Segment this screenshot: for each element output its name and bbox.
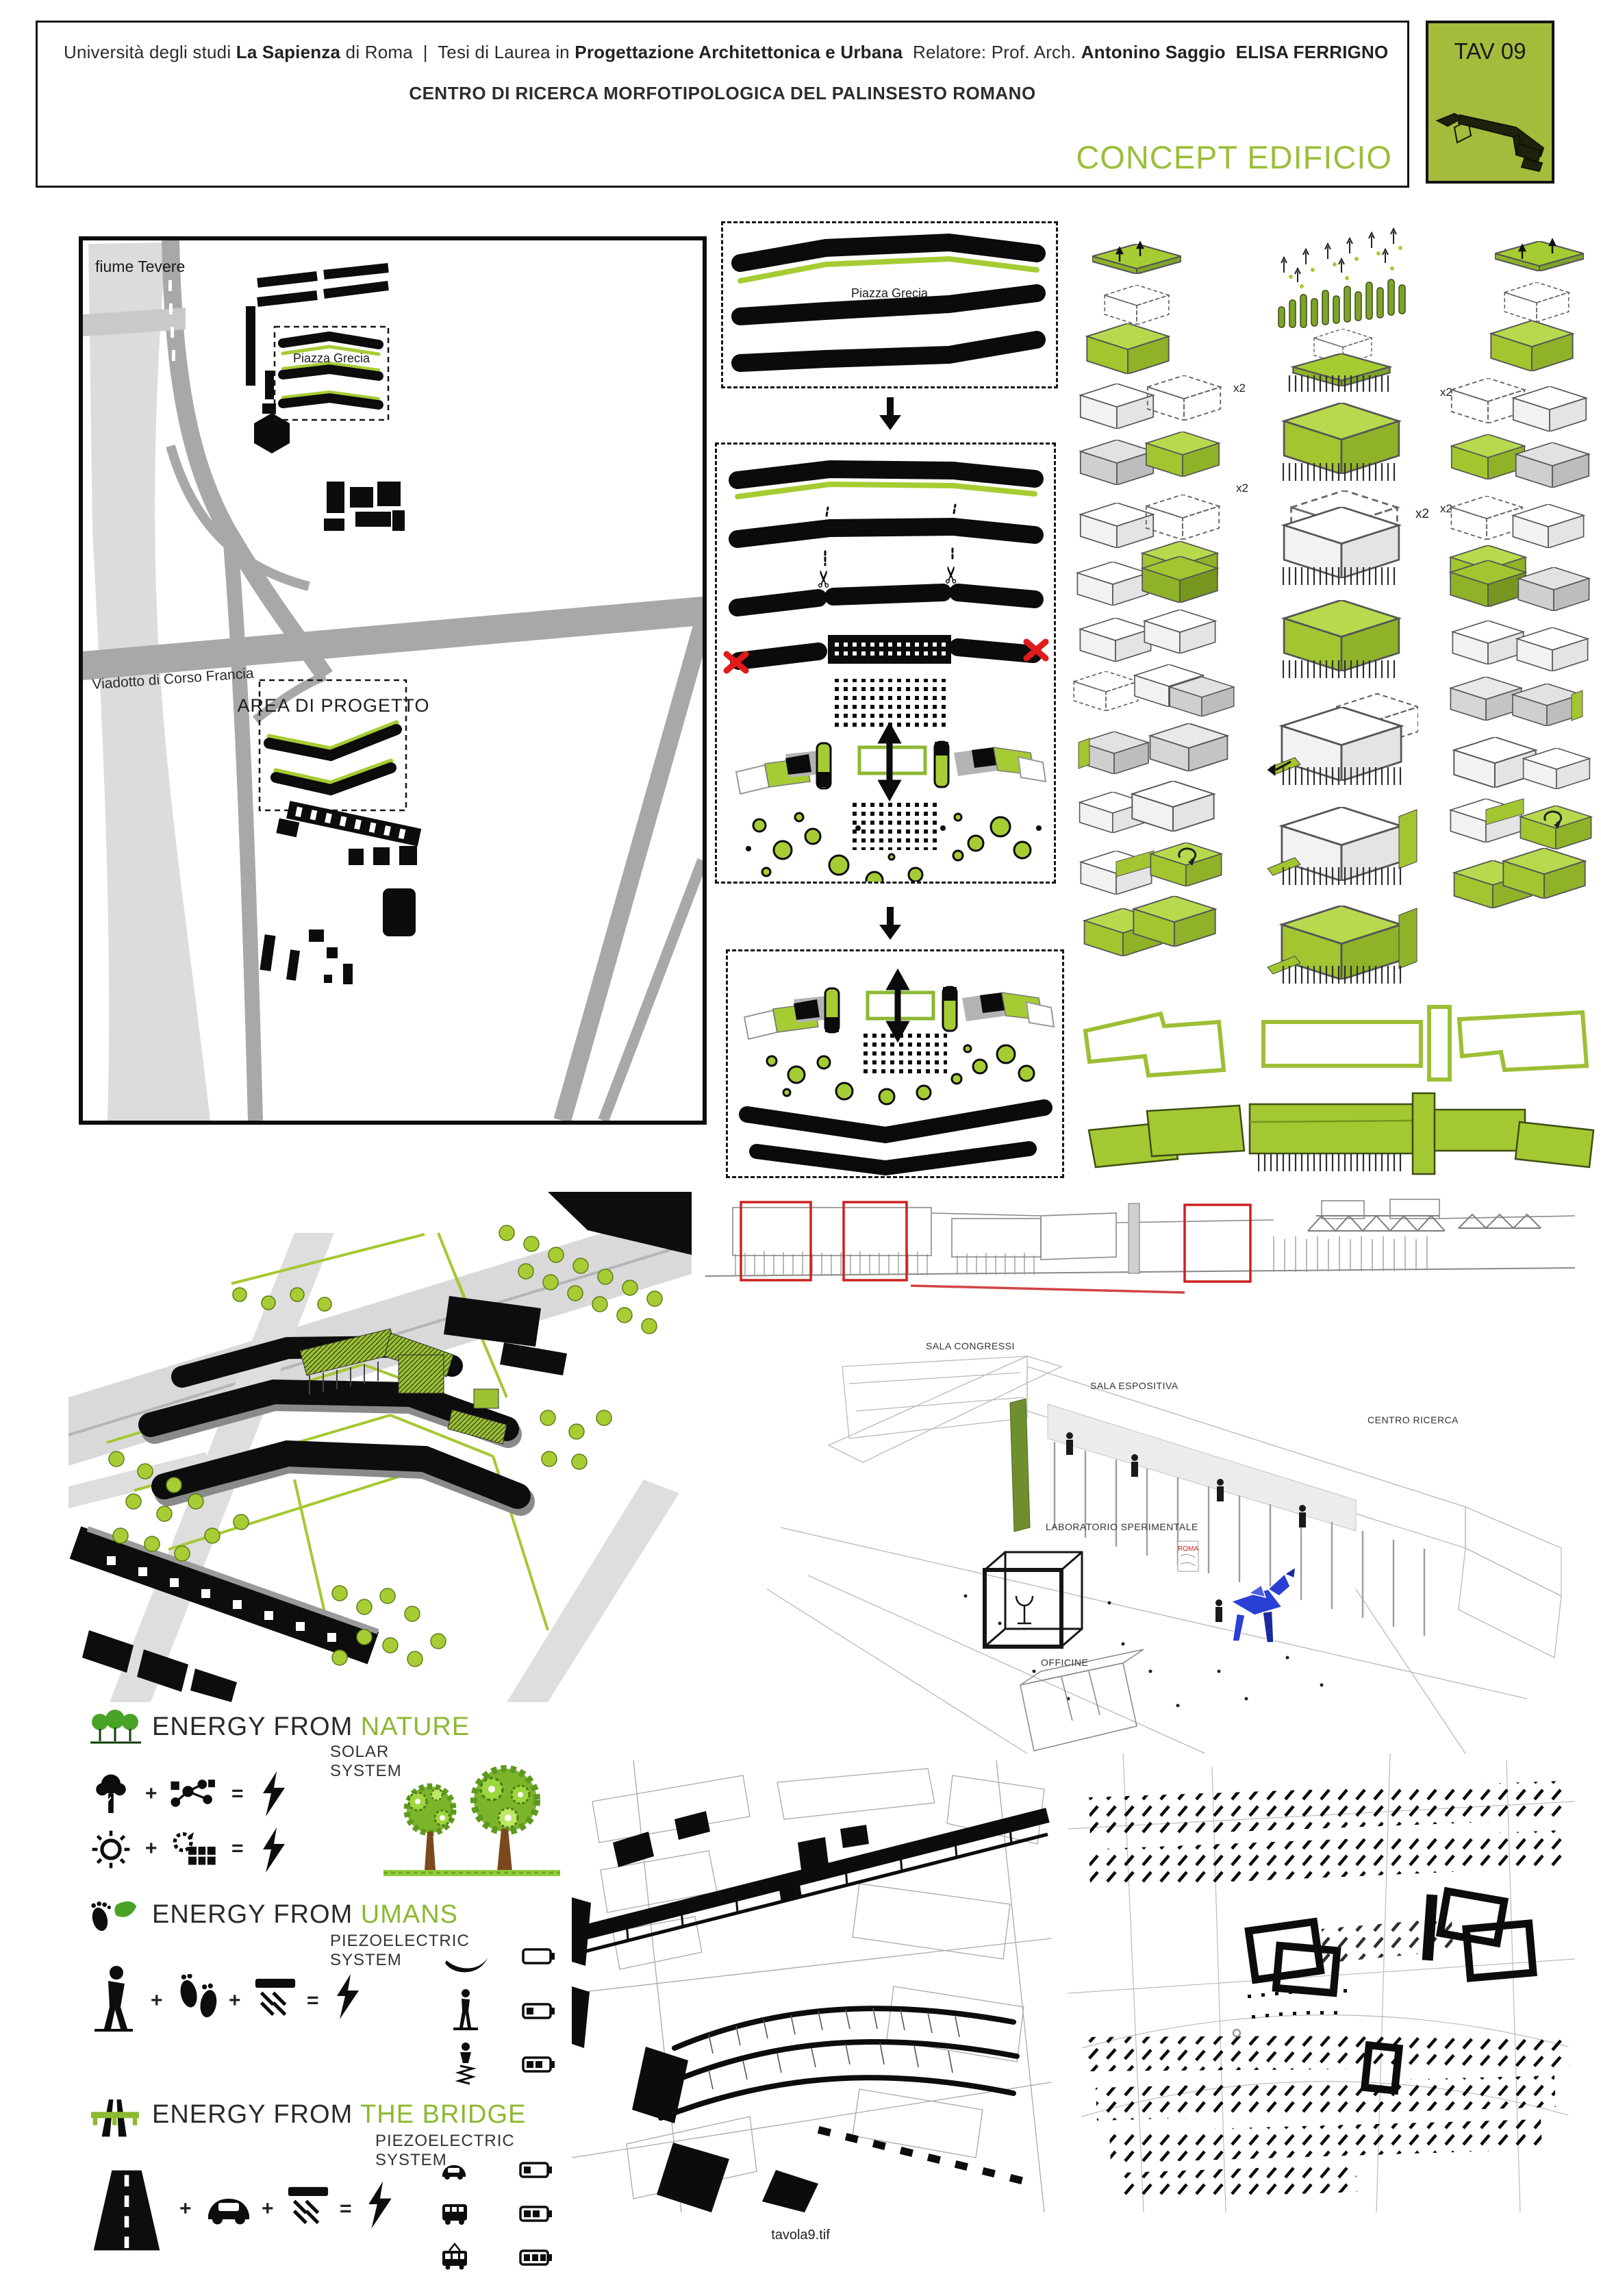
project-area-label: AREA DI PROGETTO (237, 695, 429, 716)
gear-trees-image (382, 1755, 562, 1885)
field-plan-drawing (1068, 1754, 1575, 2212)
header-line: Università degli studi La Sapienza di Ro… (64, 42, 1388, 63)
board-title: CONCEPT EDIFICIO (1076, 138, 1392, 176)
author-name: ELISA FERRIGNO (1236, 42, 1389, 62)
tav-number: TAV 09 (1428, 38, 1552, 64)
lightning-bolt-icon (259, 1827, 289, 1873)
project-area-box: AREA DI PROGETTO (237, 680, 429, 810)
plan-strip (736, 728, 1046, 795)
label-sala-congressi: SALA CONGRESSI (926, 1340, 1015, 1351)
piazza-grecia-box: Piazza Grecia (275, 327, 388, 420)
origami-horse-icon (1231, 1567, 1296, 1643)
site-axonometric (68, 1192, 692, 1702)
lightning-bolt-icon (364, 2181, 396, 2229)
battery-two-icon (520, 2207, 552, 2221)
solar-panel-gear-icon (168, 1830, 219, 1869)
tram-icon (442, 2244, 467, 2270)
header-box: Università degli studi La Sapienza di Ro… (36, 21, 1409, 188)
person-icon (94, 1966, 133, 2032)
standing-person-icon (453, 1989, 478, 2030)
car-icon (204, 2188, 253, 2226)
footsteps-icon (177, 1974, 220, 2023)
svg-text:ROMA: ROMA (1178, 1545, 1198, 1553)
banana-icon (445, 1958, 488, 1972)
label-centro-ricerca: CENTRO RICERCA (1367, 1414, 1459, 1425)
trees-icon (89, 1710, 142, 1747)
scissors-icon: ✂ (939, 565, 965, 585)
section-markers (741, 1202, 1250, 1293)
site-plan-drawing (572, 1760, 1051, 2212)
svg-text:x2: x2 (1236, 482, 1248, 495)
south-buildings (260, 846, 417, 984)
battery-full-icon (520, 2251, 552, 2264)
down-arrow-icon (875, 396, 905, 432)
lightning-bolt-icon (333, 1974, 363, 2019)
scissors-icon: ✂ (811, 569, 837, 589)
svg-text:x2: x2 (1440, 386, 1452, 399)
piloti-grove (1278, 279, 1405, 327)
river-label: fiume Tevere (95, 258, 185, 275)
axon-column-right: x2 x2 (1440, 240, 1591, 908)
motorway-icon (89, 2096, 141, 2138)
concept-step-2: ✂ ✂ (715, 442, 1056, 884)
concept-step-3 (726, 949, 1064, 1178)
svg-text:x2: x2 (1440, 502, 1452, 515)
exhibit-cube (985, 1552, 1082, 1647)
step1-piazza-label: Piazza Grecia (851, 286, 929, 300)
label-sala-espositiva: SALA ESPOSITIVA (1090, 1380, 1178, 1391)
concept-step-1: Piazza Grecia (721, 221, 1058, 388)
down-arrow-icon (875, 906, 905, 941)
car-icon (442, 2165, 466, 2180)
thesis-board: { "header": { "line1": { "t1": "Universi… (0, 0, 1601, 2268)
plan-outlines (1085, 1007, 1587, 1080)
sun-icon (90, 1829, 131, 1870)
green-wall (1010, 1399, 1030, 1532)
footprint-leaf-icon (89, 1897, 138, 1936)
massing-diagrams: x2 x2 (1065, 219, 1601, 1182)
battery-low-icon (523, 2004, 555, 2018)
file-name: tavola9.tif (0, 2228, 1601, 2243)
energy-section: ENERGY FROM NATURE SOLAR SYSTEM + = + (89, 1707, 562, 2255)
separator: | (423, 42, 428, 62)
roma-poster: ROMA (1178, 1541, 1198, 1571)
tav-building-icon (1434, 85, 1547, 174)
lightning-bolt-icon (259, 1771, 289, 1817)
site-map-panel: fiume Tevere Viadotto di Corso Francia P… (79, 236, 707, 1125)
program-perspective: ROMA SALA CONGRESSI SALA ESPOSITIVA CENT… (740, 1301, 1582, 1754)
existing-buildings (257, 268, 388, 302)
relator-name: Antonino Saggio (1081, 42, 1226, 62)
axon-column-left: x2 x2 (1074, 242, 1248, 956)
site-map: fiume Tevere Viadotto di Corso Francia P… (83, 240, 703, 1121)
bus-icon (442, 2204, 467, 2225)
tav-badge: TAV 09 (1426, 21, 1554, 184)
label-laboratorio: LABORATORIO SPERIMENTALE (1046, 1521, 1198, 1532)
branch-molecule-icon (170, 1775, 215, 1811)
battery-mid-icon (523, 2058, 555, 2071)
piezo-pad-icon (253, 1977, 297, 2021)
plan-strip (744, 975, 1054, 1039)
svg-text:x2: x2 (1415, 507, 1429, 521)
course-name: Progettazione Architettonica e Urbana (575, 42, 903, 62)
board-subtitle: CENTRO DI RICERCA MORFOTIPOLOGICA DEL PA… (38, 83, 1407, 104)
piazza-label-map: Piazza Grecia (293, 351, 370, 365)
battery-empty-icon (523, 1949, 555, 1963)
elevation-strip (705, 1188, 1575, 1301)
axon-column-middle: x2 (1268, 229, 1429, 984)
battery-one-icon (520, 2163, 552, 2177)
piezo-pad-icon (286, 2185, 330, 2229)
human-energy-batteries (440, 1943, 562, 2091)
building-cluster (324, 482, 405, 531)
person-on-spring-icon (459, 2043, 472, 2084)
svg-text:x2: x2 (1233, 382, 1246, 395)
label-officine: OFFICINE (1041, 1657, 1088, 1668)
university-text: Università degli studi (64, 42, 231, 62)
tree-icon (93, 1773, 129, 1817)
tree-sprinkle (1281, 229, 1402, 288)
viaduct-road (83, 597, 703, 680)
university-name: La Sapienza (236, 42, 340, 62)
